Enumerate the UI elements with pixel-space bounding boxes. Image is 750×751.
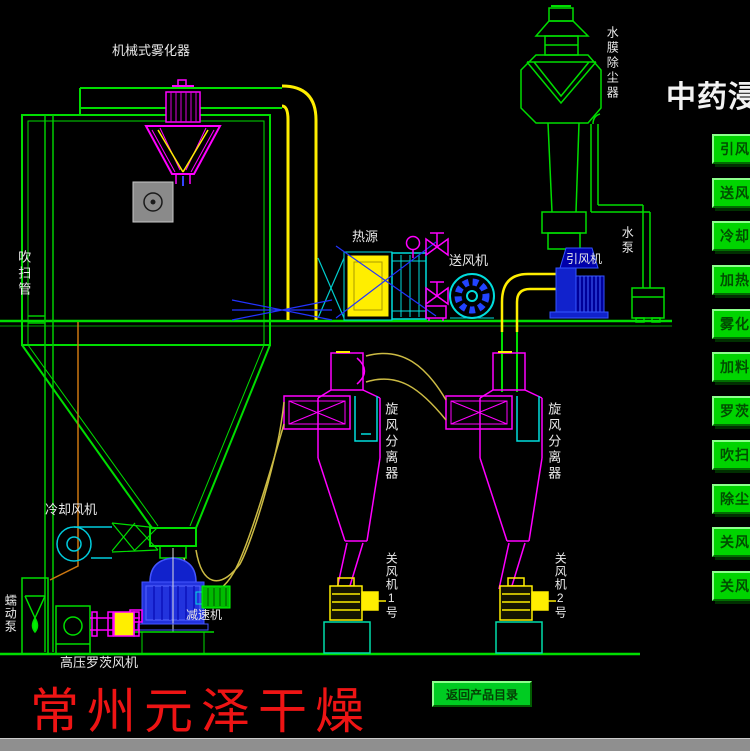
hot-air-pipe — [282, 86, 316, 320]
water-pump-label: 水泵 — [620, 226, 633, 256]
rotary-valve1-label: 关风机1号 — [384, 552, 397, 619]
sidebar-button-5[interactable]: 雾化 — [712, 309, 750, 339]
induced-fan-unit — [548, 233, 608, 318]
cyclone2-label: 旋风分离器 — [546, 402, 560, 482]
sight-glass — [133, 182, 173, 222]
cad-screenshot: { "title": "中药浸膏", "brand": "常州元泽干燥", "b… — [0, 0, 750, 750]
supply-fan-label: 送风机 — [449, 254, 488, 268]
back-to-catalog-button[interactable]: 返回产品目录 — [432, 681, 532, 707]
roots-blower-assembly — [22, 578, 140, 654]
cyclone1-label: 旋风分离器 — [383, 402, 397, 482]
cooling-fan — [57, 523, 158, 561]
roots-blower-label: 高压罗茨风机 — [60, 656, 138, 670]
supply-fan — [450, 274, 494, 318]
atomizer-label: 机械式雾化器 — [112, 44, 190, 58]
page-title: 中药浸膏 — [666, 72, 750, 116]
induced-fan-label: 引风机 — [566, 253, 602, 266]
rotary-valve2-label: 关风机2号 — [553, 552, 566, 619]
sidebar-button-3[interactable]: 冷却 — [712, 221, 750, 251]
sidebar-button-2[interactable]: 送风 — [712, 178, 750, 208]
sidebar-button-1[interactable]: 引风 — [712, 134, 750, 164]
cooling-fan-label: 冷却风机 — [45, 503, 97, 517]
exhaust-elbow — [502, 274, 558, 392]
rotary-valve-1 — [324, 578, 386, 653]
cyclone-separator-2 — [446, 352, 542, 589]
sidebar-button-8[interactable]: 吹扫 — [712, 440, 750, 470]
sidebar-button-7[interactable]: 罗茨 — [712, 396, 750, 426]
sidebar-button-4[interactable]: 加热 — [712, 265, 750, 295]
pipeline-valves — [407, 233, 449, 321]
drying-tower — [22, 88, 282, 558]
discharge-valve — [130, 548, 230, 653]
diagram-canvas — [0, 0, 750, 750]
feed-line — [50, 322, 78, 580]
rotary-valve-2 — [496, 578, 556, 653]
bottom-bar — [0, 738, 750, 751]
product-pipe-cyclone1-to-cyclone2 — [366, 353, 446, 420]
scrubber-label: 水膜除尘器 — [605, 26, 618, 101]
sidebar-button-10[interactable]: 关风 — [712, 527, 750, 557]
product-pipe-tower-to-cyclone1 — [184, 402, 284, 593]
reducer-label: 减速机 — [186, 609, 222, 622]
heater — [344, 252, 426, 320]
purge-pipe-label: 吹扫管 — [16, 250, 30, 298]
cyclone-separator-1 — [284, 352, 380, 589]
heat-source-label: 热源 — [352, 230, 378, 244]
brand-watermark: 常州元泽干燥 — [30, 672, 372, 743]
atomizer — [146, 80, 220, 186]
sidebar-button-6[interactable]: 加料 — [712, 352, 750, 382]
water-pump-box — [632, 288, 664, 322]
sidebar-button-9[interactable]: 除尘 — [712, 484, 750, 514]
sidebar-button-11[interactable]: 关风 — [712, 571, 750, 601]
peristaltic-pump-label: 蠕动泵 — [3, 594, 16, 633]
sidebar-buttons: 引风送风冷却加热雾化加料罗茨吹扫除尘关风关风 — [712, 134, 750, 601]
